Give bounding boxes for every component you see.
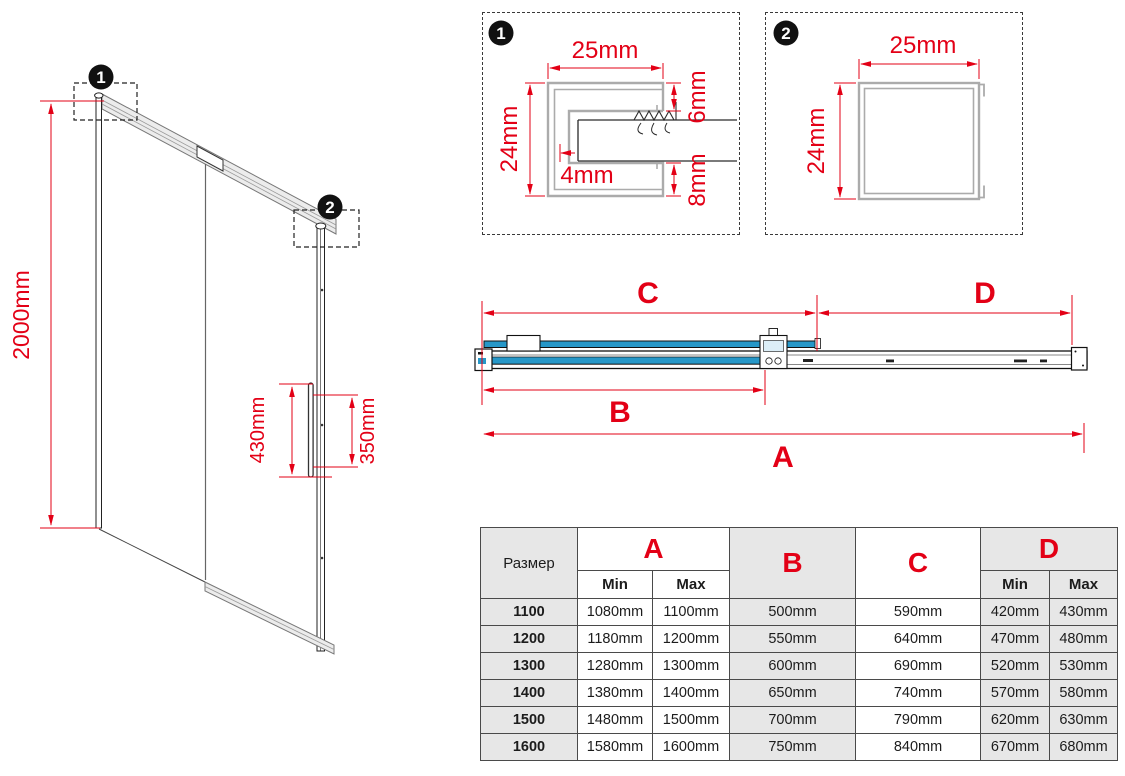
table-row: 1600 1580mm 1600mm 750mm 840mm 670mm 680… [481, 734, 1118, 761]
cell-d-min: 470mm [981, 626, 1050, 653]
detail-1-badge-number: 1 [496, 24, 505, 43]
cell-b: 500mm [730, 599, 856, 626]
callout-1-number: 1 [96, 68, 105, 87]
track-end-cap [1072, 348, 1088, 371]
cell-a-max: 1500mm [653, 707, 730, 734]
detail-2-box: 25mm 24mm 2 [765, 12, 1023, 235]
cell-b: 550mm [730, 626, 856, 653]
cell-a-max: 1400mm [653, 680, 730, 707]
detail-1-bottom-gap-label: 8mm [684, 153, 711, 206]
fixed-glass-plan [484, 357, 771, 364]
table-row: 1100 1080mm 1100mm 500mm 590mm 420mm 430… [481, 599, 1118, 626]
door-handle [309, 383, 314, 477]
table-row: 1300 1280mm 1300mm 600mm 690mm 520mm 530… [481, 653, 1118, 680]
cell-d-max: 630mm [1050, 707, 1118, 734]
handle-outer-dimension-label: 430mm [247, 397, 269, 464]
table-header-a-max: Max [653, 571, 730, 599]
cell-a-min: 1280mm [578, 653, 653, 680]
cell-c: 740mm [856, 680, 981, 707]
cell-c: 790mm [856, 707, 981, 734]
cell-d-max: 430mm [1050, 599, 1118, 626]
cell-a-min: 1580mm [578, 734, 653, 761]
glass-clamp-plan [507, 336, 540, 352]
cell-size: 1500 [481, 707, 578, 734]
cell-d-max: 530mm [1050, 653, 1118, 680]
cell-a-min: 1480mm [578, 707, 653, 734]
cell-b: 650mm [730, 680, 856, 707]
size-table: Размер A B C D Min Max Min Max 1100 1080… [480, 527, 1118, 761]
track-assembly [475, 329, 1087, 371]
cell-a-min: 1180mm [578, 626, 653, 653]
cell-d-min: 520mm [981, 653, 1050, 680]
cell-d-min: 670mm [981, 734, 1050, 761]
square-profile-section [859, 83, 984, 199]
detail-2-dimensions [834, 59, 979, 199]
detail-2-height-label: 24mm [803, 108, 830, 175]
detail-1-drawing: 25mm 24mm 6mm 4mm 8mm 1 [483, 13, 739, 234]
callout-2-number: 2 [325, 198, 334, 217]
detail-1-box: 25mm 24mm 6mm 4mm 8mm 1 [482, 12, 740, 235]
plan-dimensions [482, 295, 1084, 453]
cell-size: 1100 [481, 599, 578, 626]
cell-d-min: 570mm [981, 680, 1050, 707]
cell-c: 590mm [856, 599, 981, 626]
cell-a-max: 1600mm [653, 734, 730, 761]
technical-drawing-sheet: 2000mm 430mm 350mm 1 2 [0, 0, 1125, 776]
cell-a-max: 1200mm [653, 626, 730, 653]
cell-c: 640mm [856, 626, 981, 653]
cell-c: 690mm [856, 653, 981, 680]
cell-size: 1300 [481, 653, 578, 680]
handle-inner-dimension-label: 350mm [357, 398, 379, 465]
cell-a-min: 1380mm [578, 680, 653, 707]
table-header-b: B [730, 528, 856, 599]
cell-d-max: 480mm [1050, 626, 1118, 653]
dim-c-label: C [637, 277, 659, 310]
table-header-d: D [981, 528, 1118, 571]
cell-d-min: 420mm [981, 599, 1050, 626]
cell-a-max: 1100mm [653, 599, 730, 626]
detail-1-wall-label: 4mm [560, 162, 613, 189]
detail-2-drawing: 25mm 24mm 2 [766, 13, 1022, 234]
table-header-size: Размер [481, 528, 578, 599]
table-header-d-min: Min [981, 571, 1050, 599]
cell-size: 1400 [481, 680, 578, 707]
dim-a-label: A [772, 441, 794, 474]
cell-d-max: 580mm [1050, 680, 1118, 707]
cell-d-max: 680mm [1050, 734, 1118, 761]
gasket-seal [634, 111, 674, 120]
dim-b-label: B [609, 396, 631, 429]
cell-d-min: 620mm [981, 707, 1050, 734]
table-header-a-min: Min [578, 571, 653, 599]
detail-1-width-label: 25mm [572, 37, 639, 64]
detail-2-width-label: 25mm [890, 32, 957, 59]
table-header-d-max: Max [1050, 571, 1118, 599]
plan-view-drawing: C D B A [470, 275, 1125, 480]
table-row: 1400 1380mm 1400mm 650mm 740mm 570mm 580… [481, 680, 1118, 707]
dim-d-label: D [974, 277, 996, 310]
left-wall-profile [96, 96, 102, 528]
cell-a-min: 1080mm [578, 599, 653, 626]
cell-b: 750mm [730, 734, 856, 761]
table-header-c: C [856, 528, 981, 599]
detail-1-top-gap-label: 6mm [684, 70, 711, 123]
cell-b: 600mm [730, 653, 856, 680]
table-header-a: A [578, 528, 730, 571]
table-row: 1200 1180mm 1200mm 550mm 640mm 470mm 480… [481, 626, 1118, 653]
cell-size: 1200 [481, 626, 578, 653]
cell-size: 1600 [481, 734, 578, 761]
detail-2-badge-number: 2 [781, 24, 790, 43]
height-dimension-label: 2000mm [8, 270, 34, 359]
cell-a-max: 1300mm [653, 653, 730, 680]
cell-b: 700mm [730, 707, 856, 734]
cell-c: 840mm [856, 734, 981, 761]
roller-carriage-plan [760, 329, 787, 369]
isometric-door-drawing: 2000mm 430mm 350mm 1 2 [0, 0, 460, 776]
door-structure [95, 93, 336, 654]
table-row: 1500 1480mm 1500mm 700mm 790mm 620mm 630… [481, 707, 1118, 734]
detail-1-height-label: 24mm [496, 106, 523, 173]
